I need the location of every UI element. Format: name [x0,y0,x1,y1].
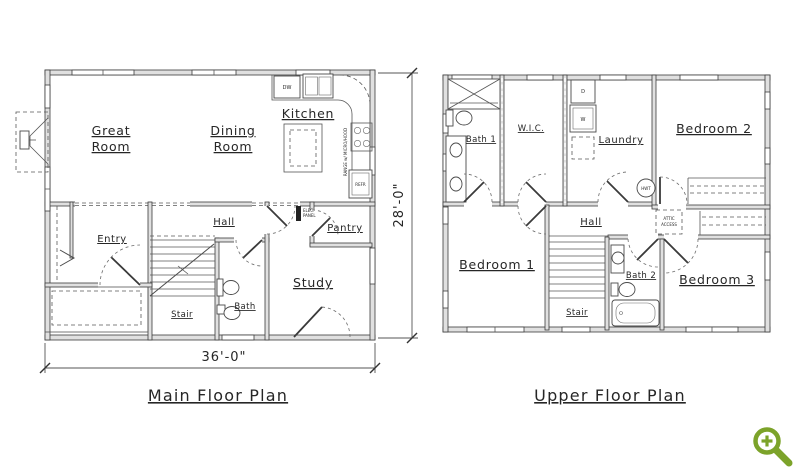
great-room-label-2: Room [92,139,131,154]
zoom-in-button[interactable] [756,430,790,464]
sink-icon [612,252,624,264]
bedroom2-closet [688,178,766,204]
pantry-label: Pantry [327,223,363,234]
refrigerator-label: REFR [355,182,366,187]
toilet-tank [611,283,618,296]
great-room-label: Great [92,123,131,138]
attic-access-label-2: ACCESS [661,222,677,227]
stair-break-line [150,244,214,296]
sink-icon [450,177,462,191]
toilet-tank [446,110,453,126]
main-bath-label: Bath [234,302,255,312]
toilet-icon [619,283,635,297]
elec-panel-label-2: PANEL [303,213,316,218]
upper-interior-walls [443,75,770,330]
width-dimension: 36'-0" [201,350,246,365]
washer-label: W [581,117,586,123]
range-label: RANGE w/ MICRO/HOOD [343,128,348,176]
bathtub-icon [612,300,659,326]
porch [45,287,148,332]
kitchen-island [284,124,322,172]
upper-floor-title: Upper Floor Plan [534,386,686,405]
main-hall-label: Hall [213,217,235,228]
bedroom3-closet [700,211,766,235]
fireplace [16,112,48,172]
toilet-icon [223,281,239,295]
floor-plan-canvas: Great Room Dining Room Kitchen Entry Hal… [0,0,800,469]
water-heater-label: HWT [641,186,651,191]
bath1-label: Bath 1 [466,135,496,145]
main-floor-plan: Great Room Dining Room Kitchen Entry Hal… [16,68,418,405]
magnifier-plus-icon [756,430,790,464]
study-label: Study [293,275,333,290]
bedroom1-label: Bedroom 1 [459,257,535,272]
elec-panel [296,206,301,221]
entry-label: Entry [97,234,127,245]
laundry-label: Laundry [599,135,644,146]
bath2-fixtures [611,245,659,326]
dishwasher-label: DW [283,85,292,91]
upper-floor-plan: Bath 1 W.I.C. Laundry Bedroom 2 Hall Bed… [443,75,770,405]
range [351,123,372,151]
shower-icon [448,79,500,109]
bath2-label: Bath 2 [626,271,656,281]
kitchen-label: Kitchen [282,106,335,121]
kitchen-sink [303,74,333,98]
laundry-dashed-box [572,137,594,159]
upper-stairs [549,242,605,298]
kitchen-counters [272,74,372,221]
main-bath-fixtures [217,279,240,320]
toilet-icon [456,111,472,125]
wic-label: W.I.C. [518,124,544,134]
main-stair-label: Stair [171,310,193,320]
toilet-tank [217,279,223,296]
dryer-label: D [581,89,585,95]
height-dimension: 28'-0" [392,182,407,227]
main-stairs [150,236,215,296]
sink-icon [450,143,462,157]
upper-stair-label: Stair [566,308,588,318]
upper-hall-label: Hall [580,217,602,228]
bedroom2-label: Bedroom 2 [676,121,752,136]
dining-room-label: Dining [210,123,255,138]
main-floor-title: Main Floor Plan [148,386,288,405]
bedroom3-label: Bedroom 3 [679,272,755,287]
dining-room-label-2: Room [214,139,253,154]
attic-access-label: ATTIC [663,216,674,221]
